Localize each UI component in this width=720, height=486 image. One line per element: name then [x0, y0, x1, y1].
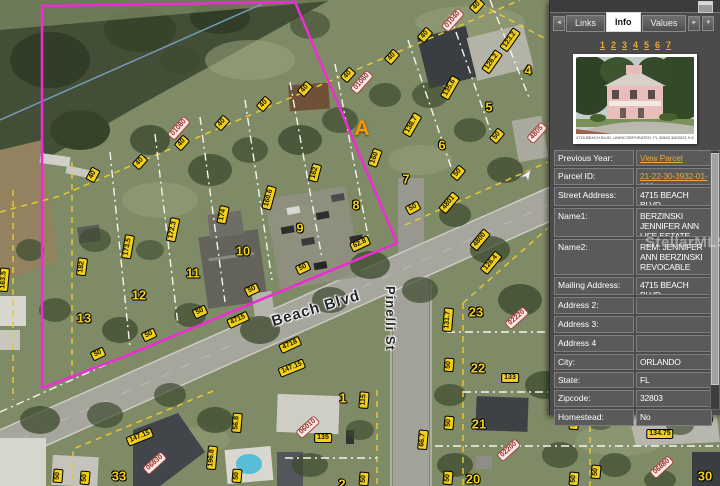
parcel-map-app: 40404040404040404040163.5182173.5172.317… [0, 0, 720, 486]
tab-values[interactable]: Values [642, 15, 687, 32]
tab-info[interactable]: Info [606, 12, 641, 32]
field-label: City: [554, 354, 634, 370]
field-row: Previous Year:View Parcel Record [554, 150, 712, 166]
field-value [636, 297, 712, 314]
info-panel: ◄ LinksInfoValues ► ▼ 1234567 [549, 0, 720, 415]
field-row: State:FL [554, 372, 712, 388]
tab-scroll-left-button[interactable]: ◄ [553, 16, 565, 31]
page-link-1[interactable]: 1 [600, 40, 605, 50]
tab-links[interactable]: Links [566, 15, 605, 32]
info-table: Previous Year:View Parcel RecordParcel I… [554, 150, 712, 428]
field-value: 4715 BEACH BLVD [636, 277, 712, 295]
field-label: Address 4 [554, 335, 634, 352]
property-photo-image [576, 57, 694, 134]
field-value[interactable]: 21-22-30-3932-01-080 [636, 168, 712, 185]
field-label: Address 2: [554, 297, 634, 314]
field-value: ORLANDO [636, 354, 712, 370]
field-label: Homestead: [554, 409, 634, 426]
field-label: Name2: [554, 239, 634, 275]
field-value: 4715 BEACH BLVD [636, 187, 712, 206]
field-row: Address 2: [554, 297, 712, 314]
field-value: 32803 [636, 390, 712, 407]
field-label: Name1: [554, 208, 634, 237]
page-link-4[interactable]: 4 [633, 40, 638, 50]
field-row: Zipcode:32803 [554, 390, 712, 407]
tab-scroll-right-button[interactable]: ► [688, 16, 700, 31]
field-value: BERZINSKI JENNIFER ANN LIFE ESTATE [636, 208, 712, 237]
field-row: Mailing Address:4715 BEACH BLVD [554, 277, 712, 295]
field-value: REM: JENNIFER ANN BERZINSKI REVOCABLE TR… [636, 239, 712, 275]
street-label-pinelli-st: Pinelli St [383, 286, 398, 351]
pagination: 1234567 [550, 35, 720, 53]
field-label: State: [554, 372, 634, 388]
property-photo[interactable]: 4715 BEACH BLVD, UNINCORPORATED, FL 3280… [573, 54, 697, 144]
page-link-5[interactable]: 5 [644, 40, 649, 50]
page-link-3[interactable]: 3 [622, 40, 627, 50]
field-row: Street Address:4715 BEACH BLVD [554, 187, 712, 206]
tab-bar: ◄ LinksInfoValues ► ▼ [552, 14, 719, 32]
field-label: Street Address: [554, 187, 634, 206]
field-row: Name2:REM: JENNIFER ANN BERZINSKI REVOCA… [554, 239, 712, 275]
field-label: Zipcode: [554, 390, 634, 407]
photo-caption: 4715 BEACH BLVD, UNINCORPORATED, FL 3280… [576, 135, 694, 140]
field-row: Homestead:No [554, 409, 712, 426]
field-value: FL [636, 372, 712, 388]
map-marker-a: A [354, 117, 369, 141]
field-row: Parcel ID:21-22-30-3932-01-080 [554, 168, 712, 185]
field-value[interactable]: View Parcel Record [636, 150, 712, 166]
field-label: Mailing Address: [554, 277, 634, 295]
field-value [636, 316, 712, 333]
field-row: Address 3: [554, 316, 712, 333]
tab-more-button[interactable]: ▼ [702, 16, 714, 31]
cursor-icon [520, 167, 534, 183]
tabs: LinksInfoValues [566, 14, 687, 32]
field-value [636, 335, 712, 352]
window-icon[interactable] [698, 1, 713, 13]
field-row: Name1:BERZINSKI JENNIFER ANN LIFE ESTATE [554, 208, 712, 237]
field-row: Address 4 [554, 335, 712, 352]
panel-scrollbar[interactable] [710, 150, 720, 410]
scrollbar-thumb[interactable] [711, 153, 719, 385]
field-label: Address 3: [554, 316, 634, 333]
field-label: Previous Year: [554, 150, 634, 166]
page-link-6[interactable]: 6 [655, 40, 660, 50]
field-value: No [636, 409, 712, 426]
page-link-2[interactable]: 2 [611, 40, 616, 50]
page-link-7[interactable]: 7 [666, 40, 671, 50]
field-row: City:ORLANDO [554, 354, 712, 370]
field-label: Parcel ID: [554, 168, 634, 185]
